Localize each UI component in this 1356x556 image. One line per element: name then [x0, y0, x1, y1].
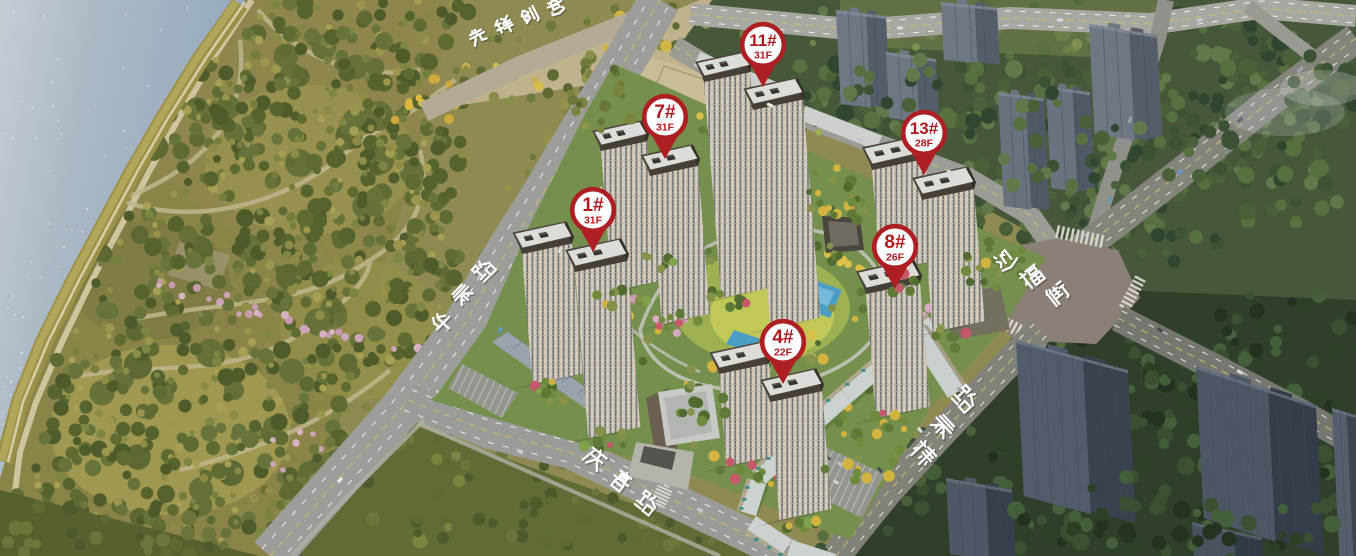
svg-text:4#: 4# [772, 327, 794, 348]
svg-text:31F: 31F [754, 50, 773, 62]
svg-text:13#: 13# [910, 119, 939, 138]
svg-text:28F: 28F [915, 138, 934, 150]
svg-text:1#: 1# [582, 195, 604, 216]
svg-text:22F: 22F [774, 347, 793, 359]
svg-text:8#: 8# [884, 232, 906, 253]
svg-text:11#: 11# [749, 31, 777, 50]
svg-text:26F: 26F [886, 252, 905, 264]
svg-text:7#: 7# [654, 102, 676, 123]
svg-text:31F: 31F [584, 215, 603, 227]
svg-text:31F: 31F [656, 122, 675, 134]
